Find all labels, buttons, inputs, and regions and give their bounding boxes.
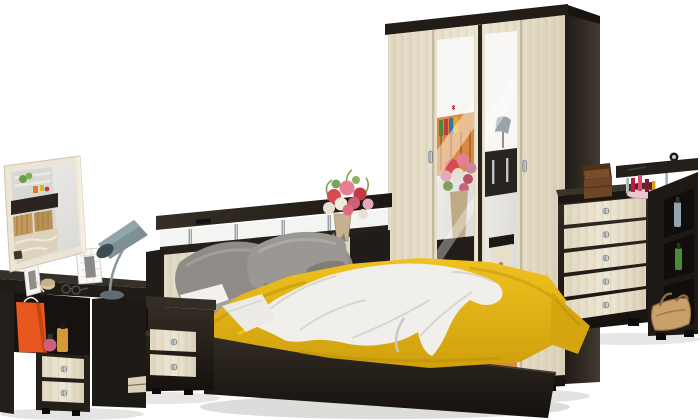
green-bottle — [675, 248, 682, 270]
wall-mirror — [4, 156, 86, 272]
dressing-table — [0, 248, 146, 416]
bedroom-furniture-photo — [0, 0, 700, 420]
wardrobe-handle-left — [429, 151, 433, 163]
chest-side-shelves — [648, 172, 698, 340]
jewellery-box — [582, 163, 612, 199]
chest-shelf-clock — [670, 153, 679, 162]
wardrobe-handle-right — [523, 160, 527, 172]
gift-bag — [16, 298, 47, 354]
chest-raised-shelf — [616, 158, 698, 178]
toiletry-bottle — [674, 202, 681, 227]
candle — [41, 279, 55, 290]
mirror-reflection — [11, 167, 58, 264]
chest-drawers — [564, 197, 646, 321]
